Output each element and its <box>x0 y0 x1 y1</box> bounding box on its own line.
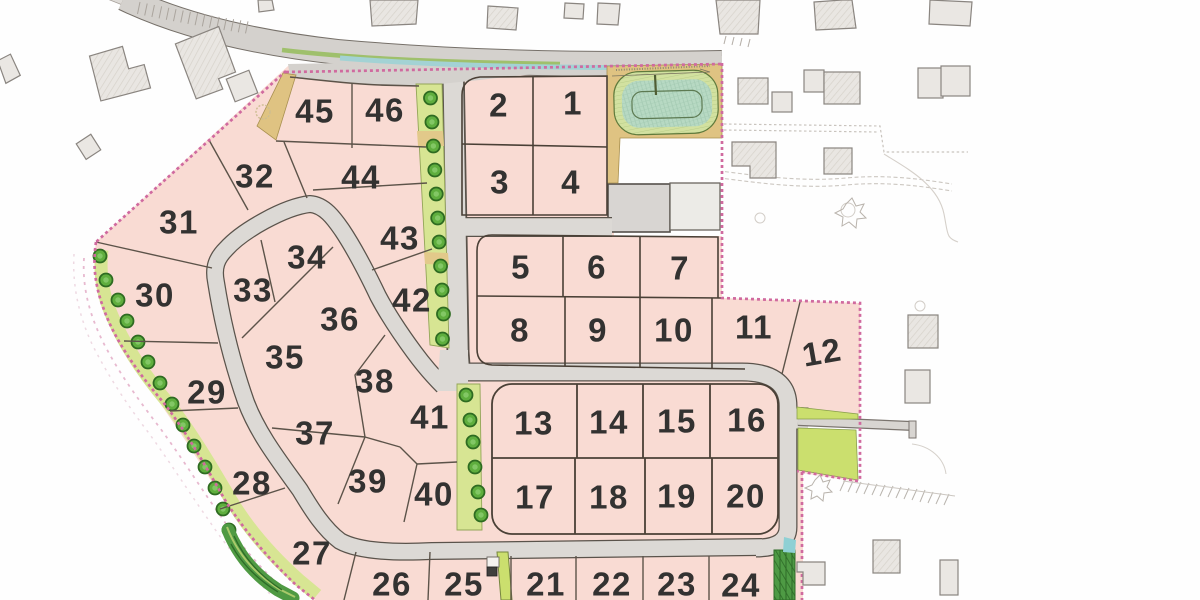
svg-text:11: 11 <box>735 309 773 346</box>
svg-text:14: 14 <box>589 404 629 441</box>
svg-text:29: 29 <box>187 374 227 411</box>
svg-text:15: 15 <box>657 403 697 440</box>
svg-text:17: 17 <box>515 479 555 516</box>
svg-text:2: 2 <box>489 87 509 124</box>
svg-text:18: 18 <box>589 479 629 516</box>
svg-text:12: 12 <box>799 330 845 373</box>
svg-text:32: 32 <box>235 158 275 195</box>
svg-text:30: 30 <box>135 277 175 314</box>
svg-text:26: 26 <box>372 566 412 600</box>
svg-text:9: 9 <box>588 312 608 349</box>
svg-text:10: 10 <box>654 312 694 349</box>
svg-text:45: 45 <box>295 93 335 130</box>
svg-text:5: 5 <box>511 249 531 286</box>
svg-text:31: 31 <box>159 204 199 241</box>
svg-text:20: 20 <box>726 478 766 515</box>
svg-text:3: 3 <box>490 164 510 201</box>
svg-text:37: 37 <box>295 415 335 452</box>
svg-text:16: 16 <box>727 402 767 439</box>
svg-text:24: 24 <box>721 567 761 600</box>
svg-text:1: 1 <box>563 85 583 122</box>
svg-text:44: 44 <box>341 159 381 196</box>
svg-text:23: 23 <box>657 566 697 600</box>
svg-text:35: 35 <box>265 339 305 376</box>
svg-text:40: 40 <box>414 476 454 513</box>
svg-text:42: 42 <box>392 282 432 319</box>
svg-text:27: 27 <box>292 535 332 572</box>
svg-text:4: 4 <box>561 164 581 201</box>
svg-text:41: 41 <box>410 399 450 436</box>
svg-text:46: 46 <box>365 92 405 129</box>
svg-text:21: 21 <box>526 566 566 600</box>
svg-text:6: 6 <box>587 249 607 286</box>
svg-text:39: 39 <box>348 463 388 500</box>
svg-text:33: 33 <box>233 272 273 309</box>
svg-text:43: 43 <box>380 220 420 257</box>
svg-text:7: 7 <box>670 250 690 287</box>
svg-text:22: 22 <box>592 566 632 600</box>
svg-text:38: 38 <box>355 363 395 400</box>
svg-text:19: 19 <box>657 478 697 515</box>
svg-text:34: 34 <box>287 239 327 276</box>
svg-text:36: 36 <box>320 301 360 338</box>
svg-text:8: 8 <box>510 312 530 349</box>
svg-text:28: 28 <box>232 465 272 502</box>
svg-text:13: 13 <box>514 405 554 442</box>
svg-text:25: 25 <box>444 566 484 600</box>
